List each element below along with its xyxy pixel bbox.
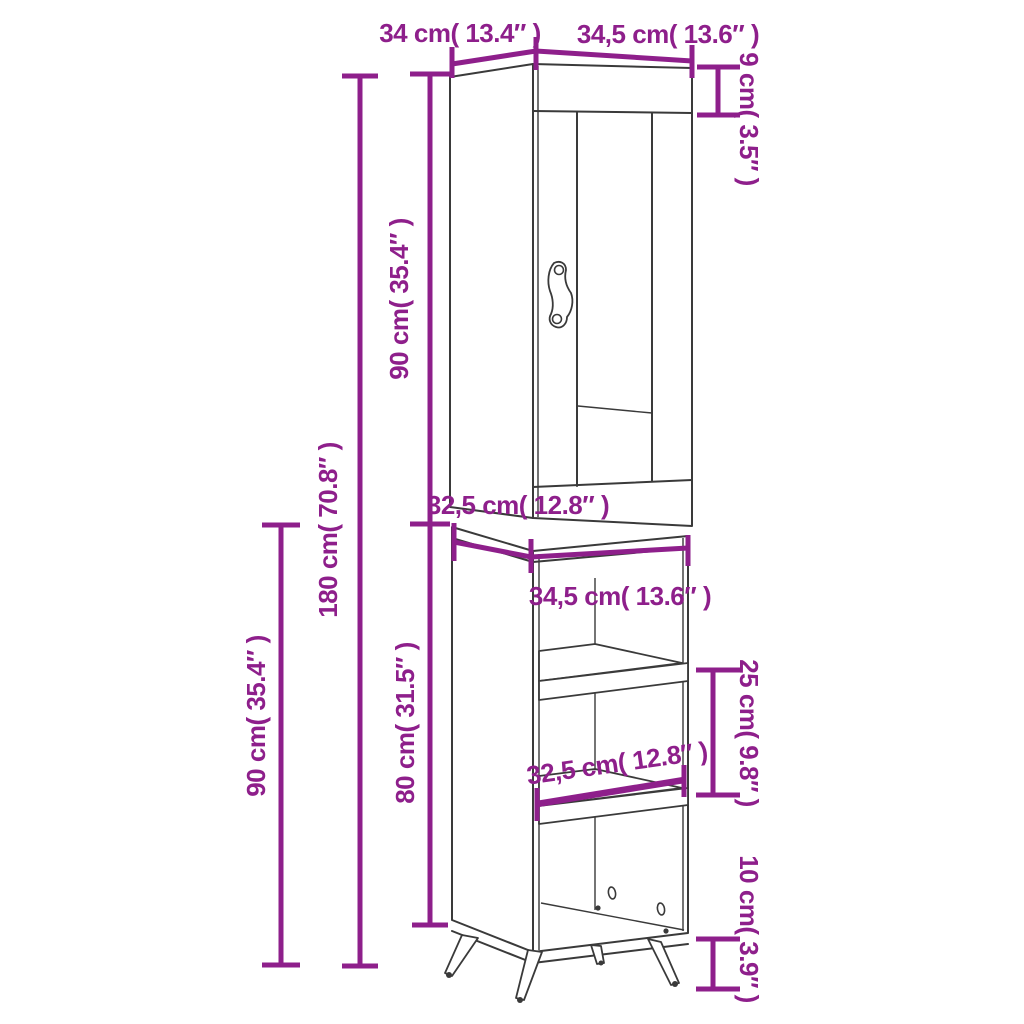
label-total-height: 180 cm( 70.8″ ) — [313, 442, 343, 618]
dim-total-height: 180 cm( 70.8″ ) — [313, 76, 378, 966]
lower-side-panel — [452, 527, 533, 952]
label-lower-half-height: 90 cm( 35.4″ ) — [241, 635, 271, 797]
leg-front-left-foot — [517, 997, 523, 1003]
label-top-width: 34,5 cm( 13.6″ ) — [577, 19, 759, 49]
label-base-width: 34,5 cm( 13.6″ ) — [529, 581, 711, 611]
floor-screw-dot-right — [663, 928, 668, 933]
leg-right-foot — [672, 981, 678, 987]
label-compartment-height: 25 cm( 9.8″ ) — [734, 659, 764, 807]
label-base-unit-height: 80 cm( 31.5″ ) — [390, 642, 420, 804]
dim-leg: 10 cm( 3.9″ ) — [696, 855, 764, 1003]
cabinet-drawing — [445, 64, 692, 1003]
dim-base-height: 80 cm( 31.5″ ) — [390, 525, 448, 925]
label-leg-height: 10 cm( 3.9″ ) — [734, 855, 764, 1003]
leg-back-left — [445, 935, 478, 976]
diagram-page: 34 cm( 13.4″ ) 34,5 cm( 13.6″ ) 9 cm( 3.… — [0, 0, 1024, 1024]
label-top-depth: 34 cm( 13.4″ ) — [379, 18, 541, 48]
dim-compartment: 25 cm( 9.8″ ) — [696, 659, 764, 807]
label-cornice-height: 9 cm( 3.5″ ) — [734, 52, 764, 186]
dim-cornice: 9 cm( 3.5″ ) — [697, 52, 764, 186]
upper-side-panel — [450, 64, 533, 518]
leg-back-left-foot — [446, 972, 452, 978]
label-base-depth: 32,5 cm( 12.8″ ) — [427, 490, 609, 520]
floor-screw-dot-left — [595, 905, 600, 910]
cabinet-dimension-diagram: 34 cm( 13.4″ ) 34,5 cm( 13.6″ ) 9 cm( 3.… — [0, 0, 1024, 1024]
dim-upper-height: 90 cm( 35.4″ ) — [384, 74, 450, 524]
dim-top-line — [452, 51, 692, 64]
label-upper-unit-height: 90 cm( 35.4″ ) — [384, 218, 414, 380]
leg-back-middle-foot — [599, 961, 604, 966]
dim-lower-half-height: 90 cm( 35.4″ ) — [241, 525, 300, 965]
upper-cabinet — [450, 64, 692, 526]
